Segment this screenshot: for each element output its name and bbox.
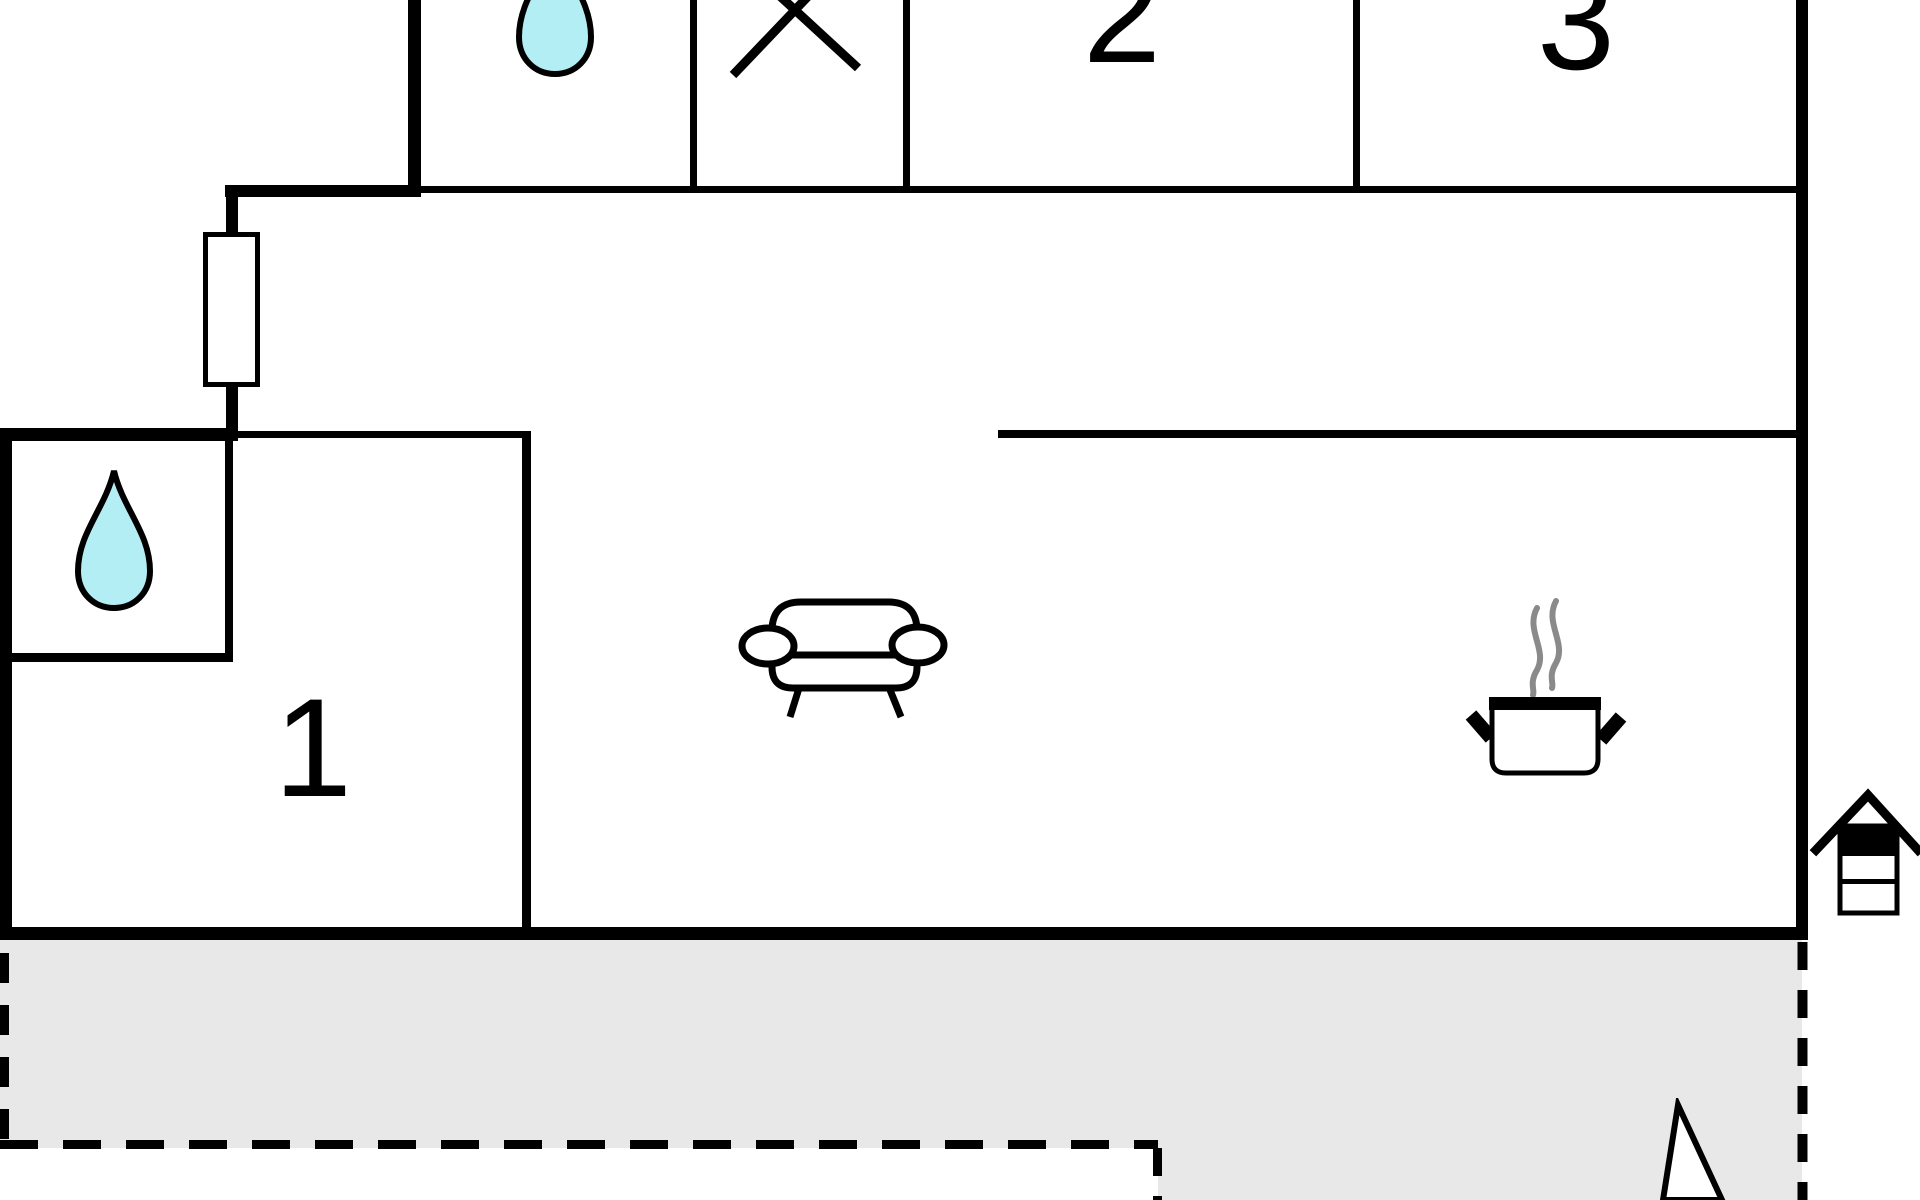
well-icon (1806, 788, 1920, 918)
wall-top-left-vertical (408, 0, 421, 193)
wall-divider-x-room2 (903, 0, 910, 193)
wall-room1-right (522, 431, 531, 927)
wall-hallway-kitchen (998, 430, 1796, 438)
room-label-2: 2 (1052, 0, 1192, 84)
wall-left-step-horizontal (0, 428, 238, 441)
x-mark-icon (715, 0, 875, 80)
floor-plan-canvas: 1 2 3 (0, 0, 1920, 1200)
window-marker (203, 232, 260, 387)
wall-top-rooms-bottom (420, 186, 1796, 193)
wall-ensuite-right (225, 438, 233, 662)
cooking-pot-icon (1455, 595, 1635, 780)
north-arrow-icon (1650, 1098, 1740, 1200)
room-label-1: 1 (243, 678, 383, 818)
wall-exterior-left (0, 428, 12, 940)
wall-exterior-bottom (0, 927, 1808, 940)
steam-icon (1552, 601, 1559, 688)
steam-icon (1533, 608, 1540, 695)
wall-upper-step-horizontal (225, 185, 421, 197)
wall-divider-bath-x (690, 0, 697, 193)
wall-ensuite-bottom (12, 653, 233, 662)
wall-window-stub-top (226, 195, 238, 237)
wall-divider-room2-room3 (1353, 0, 1360, 193)
room-label-3: 3 (1506, 0, 1646, 91)
water-drop-icon (75, 467, 153, 612)
wall-window-stub-bottom (226, 384, 238, 432)
wall-room1-top (233, 431, 530, 438)
sofa-icon (738, 595, 948, 725)
water-drop-icon (516, 0, 594, 78)
